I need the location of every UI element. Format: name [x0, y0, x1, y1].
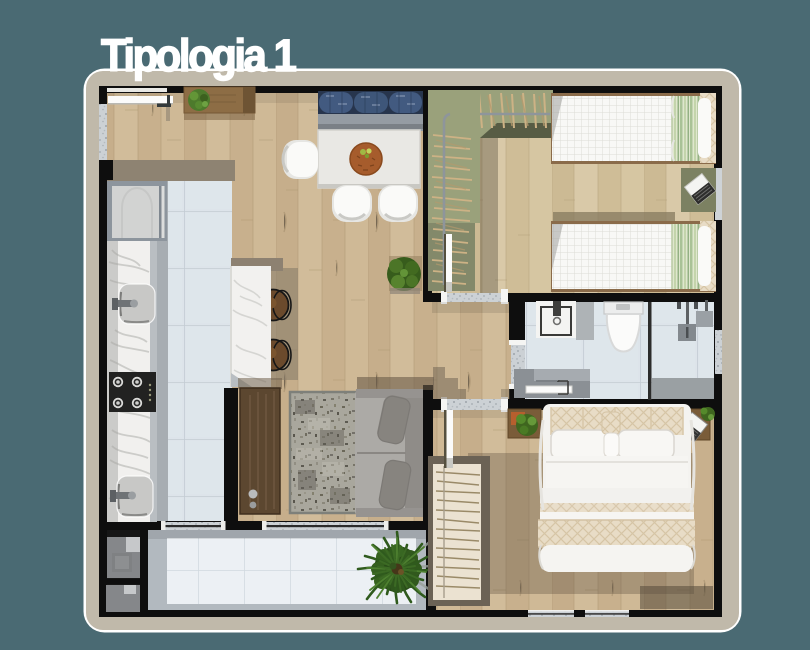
svg-text:Tipologia 1: Tipologia 1 — [101, 32, 296, 82]
